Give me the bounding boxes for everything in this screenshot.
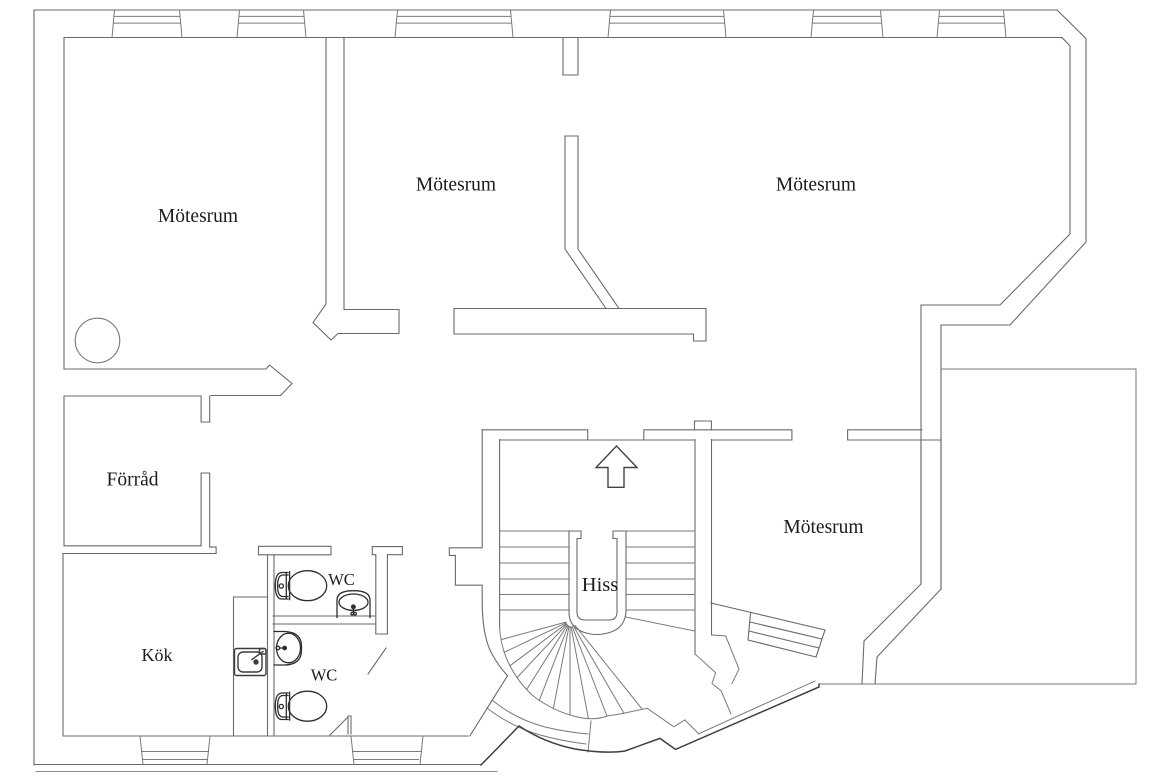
svg-text:WC: WC [311,666,338,685]
svg-text:Förråd: Förråd [107,470,159,491]
svg-text:Kök: Kök [142,645,173,665]
svg-text:Mötesrum: Mötesrum [776,175,856,196]
svg-text:WC: WC [328,570,355,589]
svg-text:Mötesrum: Mötesrum [783,517,863,538]
svg-text:Hiss: Hiss [582,574,618,596]
svg-text:Mötesrum: Mötesrum [158,206,238,227]
svg-text:Mötesrum: Mötesrum [416,175,496,196]
